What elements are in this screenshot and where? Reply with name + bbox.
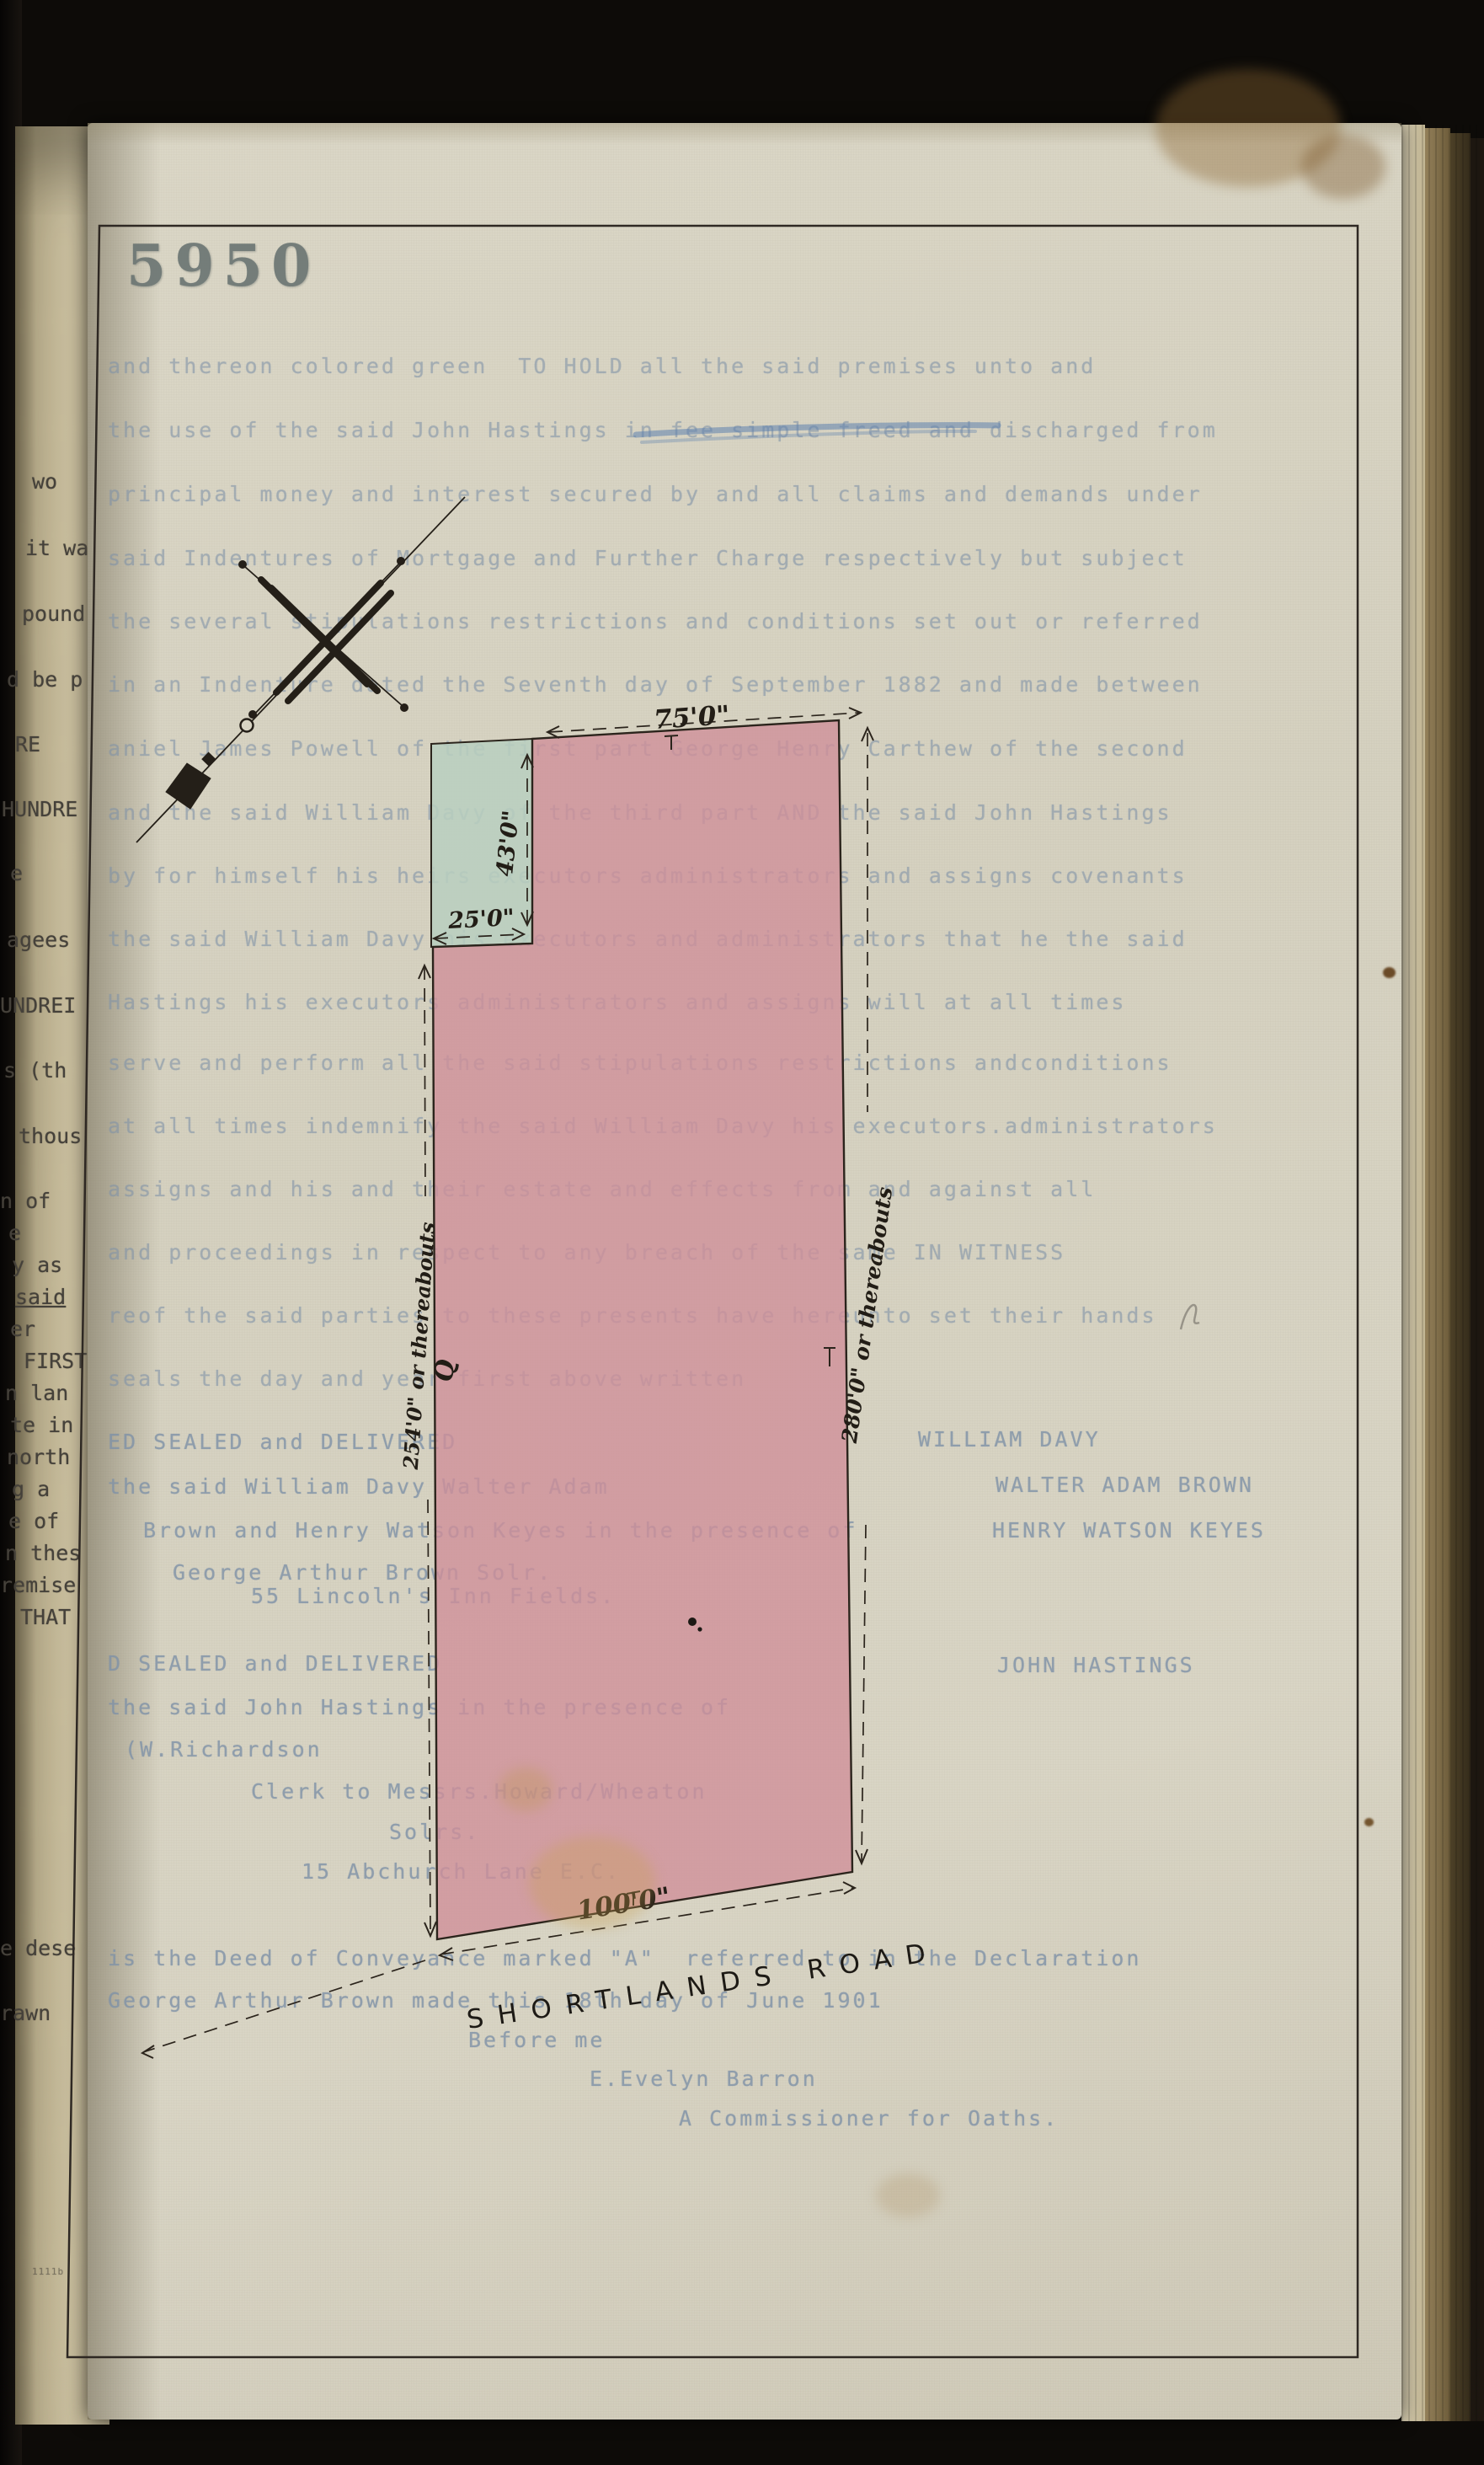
stain — [499, 1767, 552, 1811]
speck — [1364, 1818, 1374, 1826]
compass-needle-head — [166, 763, 211, 809]
compass-bead — [241, 719, 254, 732]
dim-top-width: 75'0" — [653, 700, 731, 735]
stain — [1301, 135, 1385, 199]
plot-letter: Q — [430, 1358, 462, 1383]
stain — [529, 1837, 655, 1929]
deed-plan-drawing: 75'0" 43'0" 25'0" 254'0" or thereabouts … — [0, 0, 1484, 2465]
stain — [876, 2174, 940, 2217]
speck — [1383, 967, 1396, 978]
dim-inset-width: 25'0" — [446, 905, 515, 934]
blue-pencil-underline — [636, 425, 998, 442]
book-photo: woit wapoundd be pREHUNDREeageesUNDREIs … — [0, 0, 1484, 2465]
road-name-label: SHORTLANDS ROAD — [465, 1936, 942, 2035]
north-arrow — [136, 497, 465, 842]
pencil-mark — [1181, 1305, 1199, 1329]
